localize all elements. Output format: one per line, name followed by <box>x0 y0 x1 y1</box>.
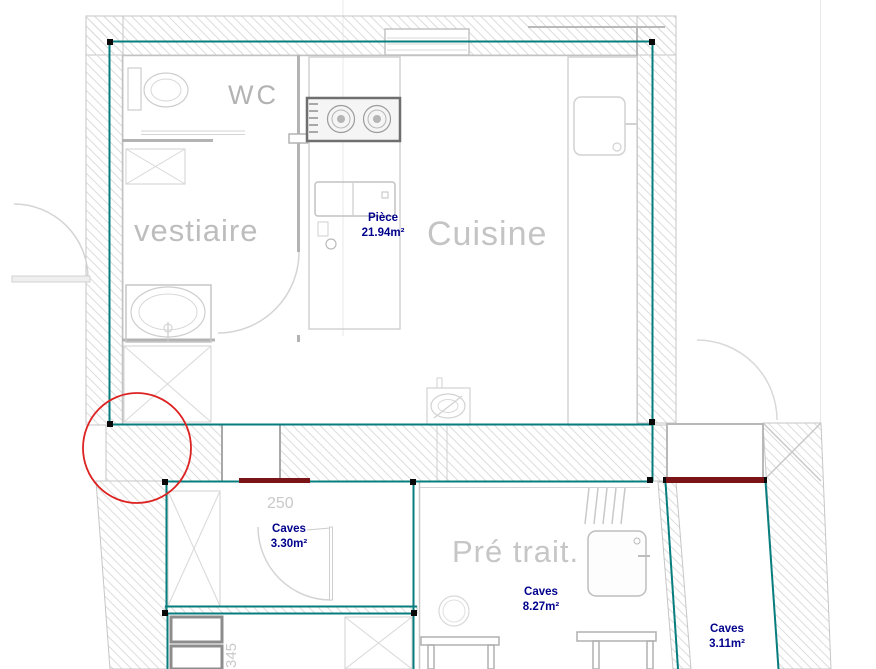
door-arc-caves <box>258 527 331 600</box>
bench <box>421 637 499 669</box>
shower <box>577 488 656 669</box>
dishwasher <box>315 182 395 216</box>
locker-box <box>171 617 222 642</box>
handle <box>410 479 416 485</box>
handle <box>649 419 655 425</box>
wall-top <box>86 16 676 55</box>
leader-line <box>307 528 330 530</box>
locker-box <box>171 646 222 669</box>
handle <box>411 610 417 616</box>
lower-storage-box <box>345 617 412 669</box>
caves-storage-box <box>168 491 220 606</box>
handle <box>162 479 168 485</box>
door-arc-vestiaire <box>218 252 299 333</box>
washer-box <box>126 149 185 184</box>
wall-left-slanted <box>96 481 167 669</box>
handle <box>107 39 113 45</box>
vestiaire-sink <box>126 285 211 342</box>
storage-box-tall <box>124 346 211 422</box>
wall-right <box>637 16 676 423</box>
wall-bottom-a <box>106 425 222 481</box>
wall-bottom-c <box>653 425 667 481</box>
wc-fixtures <box>124 68 211 422</box>
handle <box>107 421 113 427</box>
wall-bottom-b <box>280 425 653 481</box>
kitchen-fixtures <box>307 57 637 425</box>
counter-right <box>568 57 637 425</box>
door-arc-exterior-left <box>14 204 88 278</box>
opening-marker <box>239 478 310 483</box>
floor-drain <box>427 378 470 425</box>
door-leaf <box>12 276 90 282</box>
handle <box>649 39 655 45</box>
wall-left <box>86 16 123 425</box>
handle <box>162 610 168 616</box>
door-arc-right <box>697 340 777 420</box>
drawing-canvas[interactable] <box>0 0 876 669</box>
wall-mid-slanted <box>658 482 691 669</box>
toilet <box>128 68 188 110</box>
door-leaf <box>330 527 333 600</box>
opening-marker <box>666 477 764 483</box>
floor-plan: WC vestiaire Cuisine Pré trait. Pièce 21… <box>0 0 876 669</box>
stove <box>307 98 400 141</box>
wall-right-slanted <box>763 423 831 669</box>
handle <box>647 477 653 483</box>
basement-fixtures <box>168 488 656 669</box>
